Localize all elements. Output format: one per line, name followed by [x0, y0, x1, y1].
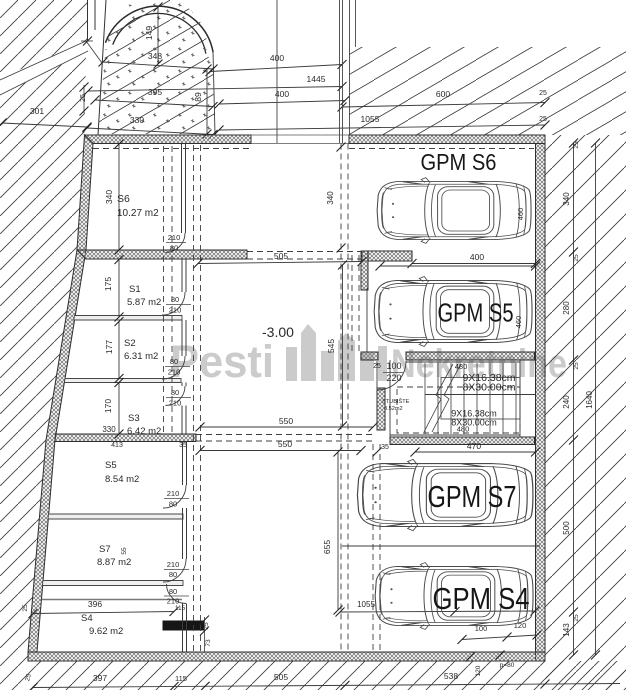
svg-text:330: 330 — [102, 425, 116, 434]
svg-text:170: 170 — [103, 399, 113, 413]
svg-text:73: 73 — [205, 639, 212, 647]
svg-text:S6: S6 — [117, 193, 130, 205]
svg-text:3.52m2: 3.52m2 — [384, 406, 403, 412]
svg-text:80: 80 — [169, 570, 177, 579]
svg-text:9.62 m2: 9.62 m2 — [89, 626, 123, 637]
svg-text:480: 480 — [455, 362, 468, 371]
svg-text:210: 210 — [167, 489, 180, 498]
svg-text:400: 400 — [470, 252, 484, 262]
svg-text:25: 25 — [373, 363, 381, 370]
svg-text:550: 550 — [279, 416, 293, 426]
svg-text:25: 25 — [573, 614, 580, 622]
svg-text:115: 115 — [175, 605, 186, 612]
svg-text:545: 545 — [326, 339, 336, 353]
svg-text:480: 480 — [457, 425, 470, 434]
svg-text:-3.00: -3.00 — [262, 324, 294, 340]
svg-text:80: 80 — [169, 587, 177, 596]
svg-text:8X30.00cm: 8X30.00cm — [462, 382, 515, 394]
svg-text:25: 25 — [539, 90, 547, 97]
svg-text:S4: S4 — [81, 613, 93, 624]
svg-text:1640: 1640 — [585, 391, 594, 409]
svg-text:470: 470 — [467, 441, 481, 451]
svg-text:25: 25 — [22, 604, 29, 612]
svg-text:505: 505 — [274, 672, 288, 682]
svg-text:280: 280 — [562, 301, 571, 315]
svg-text:177: 177 — [104, 340, 114, 354]
svg-text:210: 210 — [168, 233, 181, 242]
svg-text:330: 330 — [130, 115, 144, 125]
svg-text:600: 600 — [436, 89, 450, 99]
svg-text:220: 220 — [386, 373, 401, 383]
svg-text:80: 80 — [169, 500, 177, 509]
svg-text:1055: 1055 — [357, 600, 375, 609]
svg-text:143: 143 — [562, 623, 571, 637]
svg-text:5.87 m2: 5.87 m2 — [127, 297, 161, 308]
svg-text:25: 25 — [80, 94, 87, 102]
svg-text:100: 100 — [386, 361, 401, 371]
svg-text:10.27 m2: 10.27 m2 — [117, 208, 159, 219]
svg-text:GPM S4: GPM S4 — [433, 581, 530, 616]
svg-text:55: 55 — [121, 547, 128, 555]
svg-text:8.87 m2: 8.87 m2 — [97, 557, 131, 568]
svg-text:80: 80 — [170, 357, 178, 366]
svg-text:25: 25 — [539, 116, 547, 123]
svg-text:89: 89 — [193, 92, 203, 102]
svg-text:35: 35 — [179, 442, 187, 449]
svg-text:397: 397 — [93, 673, 107, 683]
svg-text:149: 149 — [144, 26, 154, 40]
svg-text:348: 348 — [148, 51, 162, 61]
svg-text:80: 80 — [170, 244, 178, 253]
svg-text:210: 210 — [169, 399, 182, 408]
svg-text:413: 413 — [111, 442, 123, 449]
svg-text:25: 25 — [573, 141, 580, 149]
svg-text:GPM S6: GPM S6 — [421, 149, 497, 175]
svg-text:8.54 m2: 8.54 m2 — [105, 474, 139, 485]
svg-text:210: 210 — [169, 306, 182, 315]
svg-text:S3: S3 — [128, 413, 140, 424]
svg-text:S7: S7 — [99, 544, 111, 555]
svg-text:120: 120 — [475, 665, 482, 676]
svg-text:340: 340 — [326, 191, 335, 205]
svg-text:GPM S5: GPM S5 — [438, 298, 514, 328]
svg-text:1055: 1055 — [361, 114, 380, 124]
svg-text:210: 210 — [168, 368, 181, 377]
svg-text:340: 340 — [562, 192, 571, 206]
svg-text:505: 505 — [274, 251, 288, 261]
svg-text:301: 301 — [30, 106, 44, 116]
svg-text:460: 460 — [516, 208, 525, 221]
svg-text:395: 395 — [148, 87, 162, 97]
svg-text:6.42 m2: 6.42 m2 — [127, 426, 161, 437]
svg-text:1445: 1445 — [307, 74, 326, 84]
svg-text:210: 210 — [167, 560, 180, 569]
svg-text:S5: S5 — [105, 460, 117, 471]
svg-text:538: 538 — [444, 671, 458, 681]
svg-text:25: 25 — [573, 362, 580, 370]
svg-text:p=80: p=80 — [500, 662, 515, 669]
svg-text:6.31 m2: 6.31 m2 — [124, 351, 158, 362]
svg-text:S1: S1 — [129, 284, 141, 295]
svg-text:240: 240 — [562, 395, 571, 409]
svg-text:655: 655 — [322, 540, 332, 554]
svg-text:S2: S2 — [124, 338, 136, 349]
svg-text:500: 500 — [562, 521, 571, 535]
svg-text:460: 460 — [514, 316, 523, 329]
svg-text:340: 340 — [104, 190, 114, 204]
svg-text:STUBIŠTE: STUBIŠTE — [382, 398, 410, 405]
svg-text:550: 550 — [278, 439, 292, 449]
svg-text:GPM S7: GPM S7 — [428, 479, 517, 514]
svg-text:396: 396 — [88, 599, 102, 609]
svg-text:35: 35 — [381, 444, 389, 451]
svg-text:25: 25 — [573, 254, 580, 262]
svg-text:175: 175 — [103, 277, 113, 291]
svg-text:115: 115 — [175, 674, 187, 683]
